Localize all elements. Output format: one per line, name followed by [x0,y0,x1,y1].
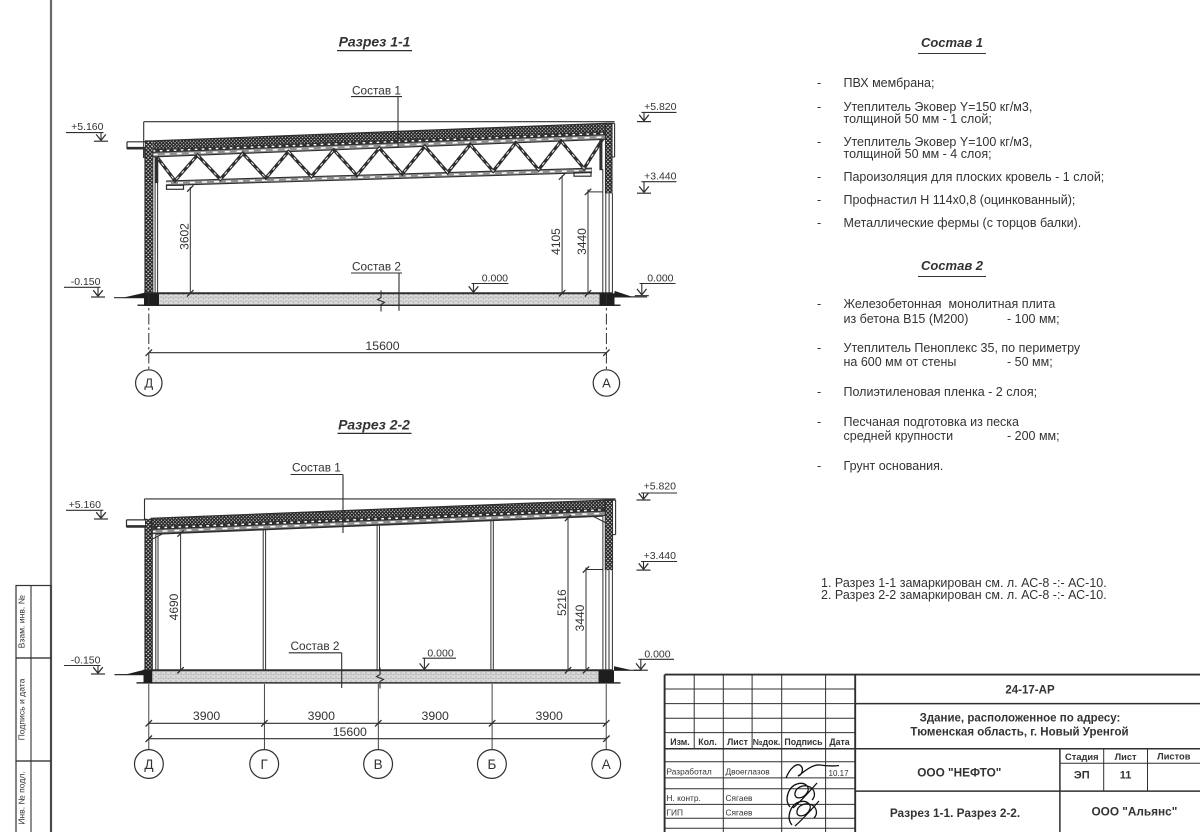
svg-text:В: В [374,757,383,772]
svg-text:3900: 3900 [308,709,336,723]
svg-text:Б: Б [487,757,496,772]
svg-text:Двоеглазов: Двоеглазов [726,767,771,777]
svg-text:Разрез 2-2: Разрез 2-2 [338,417,410,433]
svg-text:Взам. инв. №: Взам. инв. № [17,595,27,648]
svg-text:ЭП: ЭП [1074,770,1090,782]
svg-text:5216: 5216 [555,589,569,616]
svg-text:ООО "НЕФТО": ООО "НЕФТО" [917,765,1001,779]
svg-text:Д: Д [144,376,153,391]
svg-text:Состав 1: Состав 1 [352,83,401,97]
svg-text:Подпись и дата: Подпись и дата [17,678,27,740]
svg-text:15600: 15600 [365,339,399,353]
svg-text:3900: 3900 [536,709,564,723]
svg-text:Состав 2: Состав 2 [352,260,401,274]
svg-text:+5.160: +5.160 [71,121,104,133]
svg-text:-0.150: -0.150 [71,276,101,288]
svg-text:Лист: Лист [727,737,748,747]
svg-text:3440: 3440 [575,228,589,255]
svg-text:Состав 1: Состав 1 [292,460,341,474]
svg-text:+5.160: +5.160 [69,499,102,511]
svg-text:Инв. № подл.: Инв. № подл. [17,771,27,825]
svg-text:3440: 3440 [573,604,587,631]
svg-text:Листов: Листов [1157,752,1191,762]
svg-text:-0.150: -0.150 [71,654,101,666]
svg-text:Здание, расположенное по адрес: Здание, расположенное по адресу: [920,712,1121,724]
svg-text:+3.440: +3.440 [644,171,677,183]
svg-text:0.000: 0.000 [647,273,673,285]
svg-text:ГИП: ГИП [667,807,683,817]
svg-text:Д: Д [144,757,153,772]
svg-text:0.000: 0.000 [482,273,508,285]
svg-text:Состав 2: Состав 2 [291,639,340,653]
svg-text:Н. контр.: Н. контр. [667,793,701,803]
svg-text:4105: 4105 [549,228,563,255]
svg-text:А: А [602,376,611,391]
svg-text:Кол.: Кол. [698,737,717,747]
svg-text:4690: 4690 [167,593,181,620]
svg-text:+5.820: +5.820 [644,480,677,492]
svg-text:Разработал: Разработал [667,767,712,777]
svg-text:3900: 3900 [193,709,221,723]
svg-text:Сягаев: Сягаев [726,807,754,817]
svg-text:Лист: Лист [1115,752,1137,762]
svg-text:Сягаев: Сягаев [726,793,754,803]
svg-text:11: 11 [1120,770,1132,782]
svg-text:Тюменская область, г. Новый Ур: Тюменская область, г. Новый Уренгой [910,727,1128,739]
svg-text:15600: 15600 [333,725,367,739]
svg-text:Стадия: Стадия [1065,752,1098,762]
svg-text:10.17: 10.17 [829,769,850,778]
svg-text:Разрез 1-1. Разрез 2-2.: Разрез 1-1. Разрез 2-2. [890,806,1020,820]
svg-text:Дата: Дата [829,737,849,747]
svg-text:Разрез 1-1: Разрез 1-1 [339,34,411,50]
svg-text:3602: 3602 [177,223,191,250]
svg-text:А: А [602,757,611,772]
svg-text:№док.: №док. [753,737,781,747]
svg-text:Г: Г [261,757,269,772]
svg-text:+3.440: +3.440 [644,550,677,562]
svg-text:0.000: 0.000 [644,648,670,660]
svg-text:+5.820: +5.820 [644,101,677,113]
svg-text:ООО "Альянс": ООО "Альянс" [1091,805,1177,819]
svg-text:24-17-АР: 24-17-АР [1005,685,1055,697]
svg-text:Подпись: Подпись [784,737,823,747]
svg-text:3900: 3900 [422,709,450,723]
svg-text:Изм.: Изм. [670,737,689,747]
